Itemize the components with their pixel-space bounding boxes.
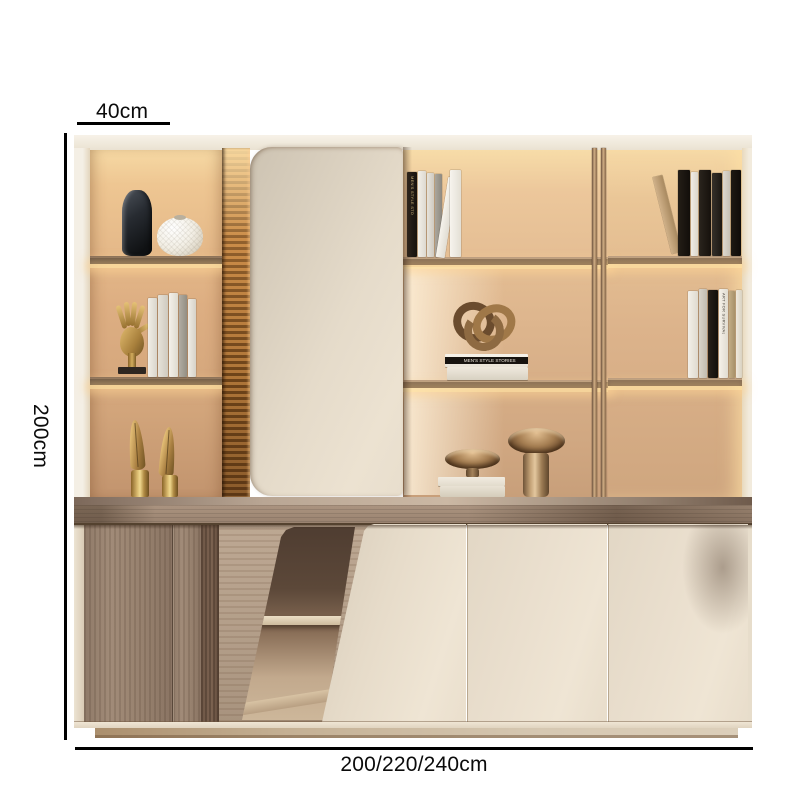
dimension-line-top-width (77, 122, 170, 125)
book-spine (708, 290, 718, 378)
dimension-line-left-height (64, 133, 67, 740)
product-image: 40cm 200cm 200/220/240cm (0, 0, 800, 800)
book-spine-text: ART FOR SURVIVAL (721, 293, 726, 334)
stacked-book: MEN'S STYLE STORIES (445, 354, 528, 367)
white-ribbed-vase (157, 217, 203, 256)
door-edge-shadow (403, 147, 412, 497)
dimension-line-bottom-width (75, 747, 753, 750)
fluted-wood-panel (222, 148, 250, 497)
base-left-edge (74, 525, 84, 722)
book-spine (148, 298, 157, 377)
stacked-book (447, 367, 528, 380)
stacked-book (440, 486, 505, 497)
feather-base (131, 470, 149, 497)
stacked-book (438, 477, 505, 486)
dimension-label-left-height: 200cm (28, 404, 52, 468)
book-spine (712, 173, 722, 256)
book-spine (699, 289, 707, 378)
wood-divider-strip (201, 525, 219, 722)
book-spine (699, 170, 711, 256)
feather-base (162, 475, 178, 497)
cabinet-top-frame (74, 135, 752, 150)
sliding-door-panel (250, 147, 403, 496)
book-spine (418, 171, 426, 257)
shelf-board (403, 257, 608, 265)
shelf-board (90, 256, 222, 264)
book-spine (678, 170, 690, 256)
cabinet-right-wall (742, 148, 752, 498)
wood-base-cabinet-door (173, 525, 201, 722)
niche-shelf (258, 616, 344, 625)
wall-cabinet: MEN'S STYLE STORIES MEN'S STYLE STORIES (74, 135, 752, 740)
book-spine (179, 295, 187, 377)
wood-base-cabinet-door (84, 525, 173, 722)
dark-glass-vase (122, 190, 152, 256)
soft-shadow (608, 524, 748, 722)
plinth (95, 728, 738, 738)
book-spine (158, 295, 168, 377)
book-spine (688, 291, 698, 378)
dimension-label-bottom-width: 200/220/240cm (294, 753, 534, 777)
book-spine (169, 293, 178, 377)
base-right-edge (748, 525, 752, 722)
dimension-label-top-width: 40cm (96, 100, 148, 124)
bronze-rail (601, 148, 606, 497)
base-door (467, 524, 607, 722)
bronze-rail (592, 148, 597, 497)
book-spine (188, 299, 196, 377)
book-spine (723, 171, 730, 256)
base-top-shadow (74, 525, 752, 529)
countertop-surface (74, 497, 752, 505)
cabinet-left-wall (74, 148, 90, 498)
shelf-board (403, 380, 608, 388)
book-spine (736, 290, 742, 378)
book-spine (450, 170, 461, 257)
book-spine (691, 172, 698, 256)
shelf-board (90, 377, 222, 385)
shelf-board (608, 256, 742, 264)
book-spine: ART FOR SURVIVAL (719, 289, 728, 378)
book-spine (427, 173, 434, 257)
countertop-fascia (74, 505, 752, 523)
shelf-board (608, 378, 742, 386)
book-band-text: MEN'S STYLE STORIES (464, 358, 516, 362)
book-spine (731, 170, 741, 256)
gold-hand-sculpture (115, 305, 151, 377)
book-spine (729, 291, 735, 378)
